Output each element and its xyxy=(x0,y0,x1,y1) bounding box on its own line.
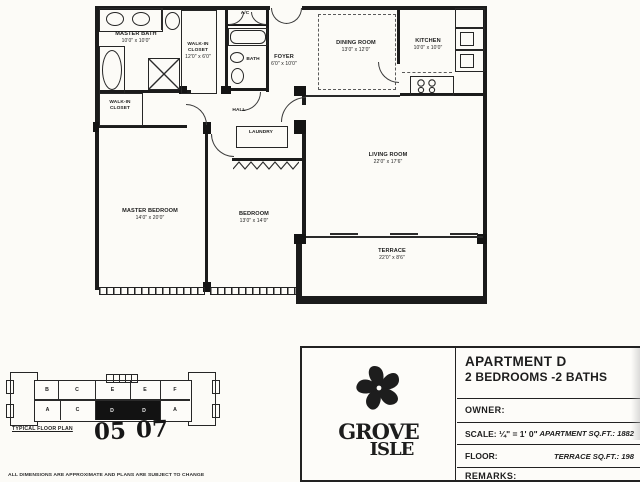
door-arc xyxy=(186,104,207,125)
room-label-laundry: LAUNDRY xyxy=(238,130,284,136)
wall-segment xyxy=(296,240,302,296)
sink-icon xyxy=(132,12,150,26)
room-name: WALK-IN CLOSET xyxy=(101,100,139,112)
room-label-terrace: TERRACE 22'0" x 8'6" xyxy=(352,248,432,261)
grove-isle-logo-icon xyxy=(347,358,411,418)
room-label-walkin-center: WALK-IN CLOSET 12'0" x 6'0" xyxy=(183,42,213,60)
wall-segment xyxy=(95,128,99,290)
room-name: MASTER BATH xyxy=(104,31,168,38)
wall-segment xyxy=(305,95,400,97)
room-dims: 22'0" x 17'6" xyxy=(340,159,436,165)
appliance xyxy=(455,8,485,28)
room-label-hall: HALL xyxy=(226,108,252,114)
scan-streak xyxy=(631,348,640,440)
wall-segment xyxy=(397,6,400,64)
title-block-row-floor: FLOOR: TERRACE SQ.FT.: 198 xyxy=(457,446,640,468)
room-label-bath: BATH xyxy=(242,57,264,63)
room-dims: 6'0" x 10'0" xyxy=(266,61,302,67)
room-dims: 10'0" x 10'0" xyxy=(104,38,168,44)
room-dims: 13'0" x 12'0" xyxy=(324,47,388,53)
building-wing-notch xyxy=(6,404,14,418)
wall-segment xyxy=(225,88,269,91)
unit-cell-f: F xyxy=(161,381,189,399)
wall-segment xyxy=(302,125,306,240)
entry-door-arc xyxy=(271,8,287,24)
shower-icon xyxy=(148,58,180,90)
room-name: WALK-IN CLOSET xyxy=(183,42,213,54)
key-plan: B C E E F A C D D A TYPICAL FLOOR PLAN 0… xyxy=(0,360,240,480)
sliding-door-panel xyxy=(450,233,478,235)
building-wing-notch xyxy=(212,404,220,418)
terrace-sqft: TERRACE SQ.FT.: 198 xyxy=(554,452,634,461)
bathtub-basin xyxy=(102,50,122,90)
sink-icon xyxy=(106,12,124,26)
apartment-title: APARTMENT D xyxy=(457,348,640,369)
unit-cell-c: C xyxy=(60,381,94,399)
sliding-door-panel xyxy=(330,233,358,235)
logo-text-isle: ISLE xyxy=(328,442,455,458)
range-burners-icon xyxy=(411,77,453,95)
room-name: BEDROOM xyxy=(226,211,282,218)
toilet-icon xyxy=(231,68,244,84)
entry-door-arc xyxy=(286,8,302,24)
floor-label: FLOOR: xyxy=(465,451,498,461)
wall-column xyxy=(294,86,306,96)
counter-edge xyxy=(402,72,452,73)
room-name: LAUNDRY xyxy=(238,130,284,136)
title-block-row-apartment: APARTMENT D 2 BEDROOMS -2 BATHS xyxy=(457,348,640,399)
room-name: HALL xyxy=(226,108,252,114)
wall-column xyxy=(294,120,306,134)
title-block-row-scale: SCALE: ¼" = 1' 0" APARTMENT SQ.FT.: 1882 xyxy=(457,423,640,445)
room-name: A/C xyxy=(230,11,260,17)
room-name: BATH xyxy=(242,57,264,63)
room-label-ac: A/C xyxy=(230,11,260,17)
window-band xyxy=(99,287,205,295)
window-band xyxy=(210,287,296,295)
room-dims: 14'0" x 20'0" xyxy=(108,215,192,221)
terrace-bottom-wall xyxy=(296,296,487,304)
room-name: FOYER xyxy=(266,54,302,61)
apartment-config: 2 BEDROOMS -2 BATHS xyxy=(457,369,640,384)
room-name: KITCHEN xyxy=(404,38,452,45)
wall-segment xyxy=(205,125,208,292)
toilet-icon xyxy=(165,12,180,30)
building-wing-notch xyxy=(212,380,220,394)
building-wing-notch xyxy=(6,380,14,394)
door-arc xyxy=(211,134,234,157)
appliance-inner xyxy=(460,54,474,68)
title-block-row-owner: OWNER: xyxy=(457,400,640,423)
room-label-master-bath: MASTER BATH 10'0" x 10'0" xyxy=(104,31,168,44)
room-name: MASTER BEDROOM xyxy=(108,208,192,215)
key-plan-caption: TYPICAL FLOOR PLAN xyxy=(12,426,73,432)
bathtub-basin xyxy=(230,30,266,44)
room-name: DINING ROOM xyxy=(324,40,388,47)
room-label-master-bedroom: MASTER BEDROOM 14'0" x 20'0" xyxy=(108,208,192,221)
room-label-bedroom: BEDROOM 13'0" x 14'0" xyxy=(226,211,282,224)
room-dims: 10'0" x 10'0" xyxy=(404,45,452,51)
closet-rod-icon xyxy=(233,161,299,170)
wall-column xyxy=(294,234,306,244)
unit-cell-c2: C xyxy=(61,401,94,419)
sliding-door-track xyxy=(306,236,483,238)
range-icon xyxy=(410,76,454,96)
shower-x-icon xyxy=(149,59,179,89)
wall-segment xyxy=(225,6,228,92)
wall-segment xyxy=(161,8,163,30)
scale-label: SCALE: ¼" = 1' 0" xyxy=(465,429,538,439)
title-block-row-remarks: REMARKS: xyxy=(457,468,640,479)
sliding-door-panel xyxy=(390,233,418,235)
unit-cell-e2: E xyxy=(131,381,159,399)
room-label-walkin-master: WALK-IN CLOSET xyxy=(101,100,139,112)
wall-segment xyxy=(483,240,487,302)
handwritten-unit-number: 05 xyxy=(94,417,127,445)
wall-segment xyxy=(225,6,270,10)
wall-segment xyxy=(266,6,269,92)
title-block: GROVE ISLE APARTMENT D 2 BEDROOMS -2 BAT… xyxy=(300,346,640,482)
room-label-kitchen: KITCHEN 10'0" x 10'0" xyxy=(404,38,452,51)
apartment-sqft: APARTMENT SQ.FT.: 1882 xyxy=(539,429,634,438)
unit-cell-e: E xyxy=(96,381,129,399)
scanned-floorplan-sheet: { "page": { "disclaimer": "ALL DIMENSION… xyxy=(0,0,640,480)
unit-cell-b: B xyxy=(36,381,58,399)
room-dims: 12'0" x 6'0" xyxy=(183,54,213,60)
unit-cell-a: A xyxy=(36,401,59,419)
room-name: LIVING ROOM xyxy=(340,152,436,159)
door-arc xyxy=(281,97,306,122)
wall-column xyxy=(221,86,231,94)
owner-label: OWNER: xyxy=(457,400,640,415)
room-name: TERRACE xyxy=(352,248,432,255)
room-label-dining: DINING ROOM 13'0" x 12'0" xyxy=(324,40,388,53)
appliance-inner xyxy=(460,32,474,46)
room-label-living: LIVING ROOM 22'0" x 17'6" xyxy=(340,152,436,165)
floor-plan: MASTER BATH 10'0" x 10'0" WALK-IN CLOSET… xyxy=(0,0,640,340)
remarks-label: REMARKS: xyxy=(457,468,640,481)
room-dims: 13'0" x 14'0" xyxy=(226,218,282,224)
room-dims: 22'0" x 8'6" xyxy=(352,255,432,261)
unit-divider xyxy=(58,380,59,399)
handwritten-unit-number: 07 xyxy=(136,415,169,443)
title-block-logo-cell: GROVE ISLE xyxy=(302,348,456,480)
disclaimer-text: ALL DIMENSIONS ARE APPROXIMATE AND PLANS… xyxy=(8,472,288,478)
room-label-foyer: FOYER 6'0" x 10'0" xyxy=(266,54,302,67)
